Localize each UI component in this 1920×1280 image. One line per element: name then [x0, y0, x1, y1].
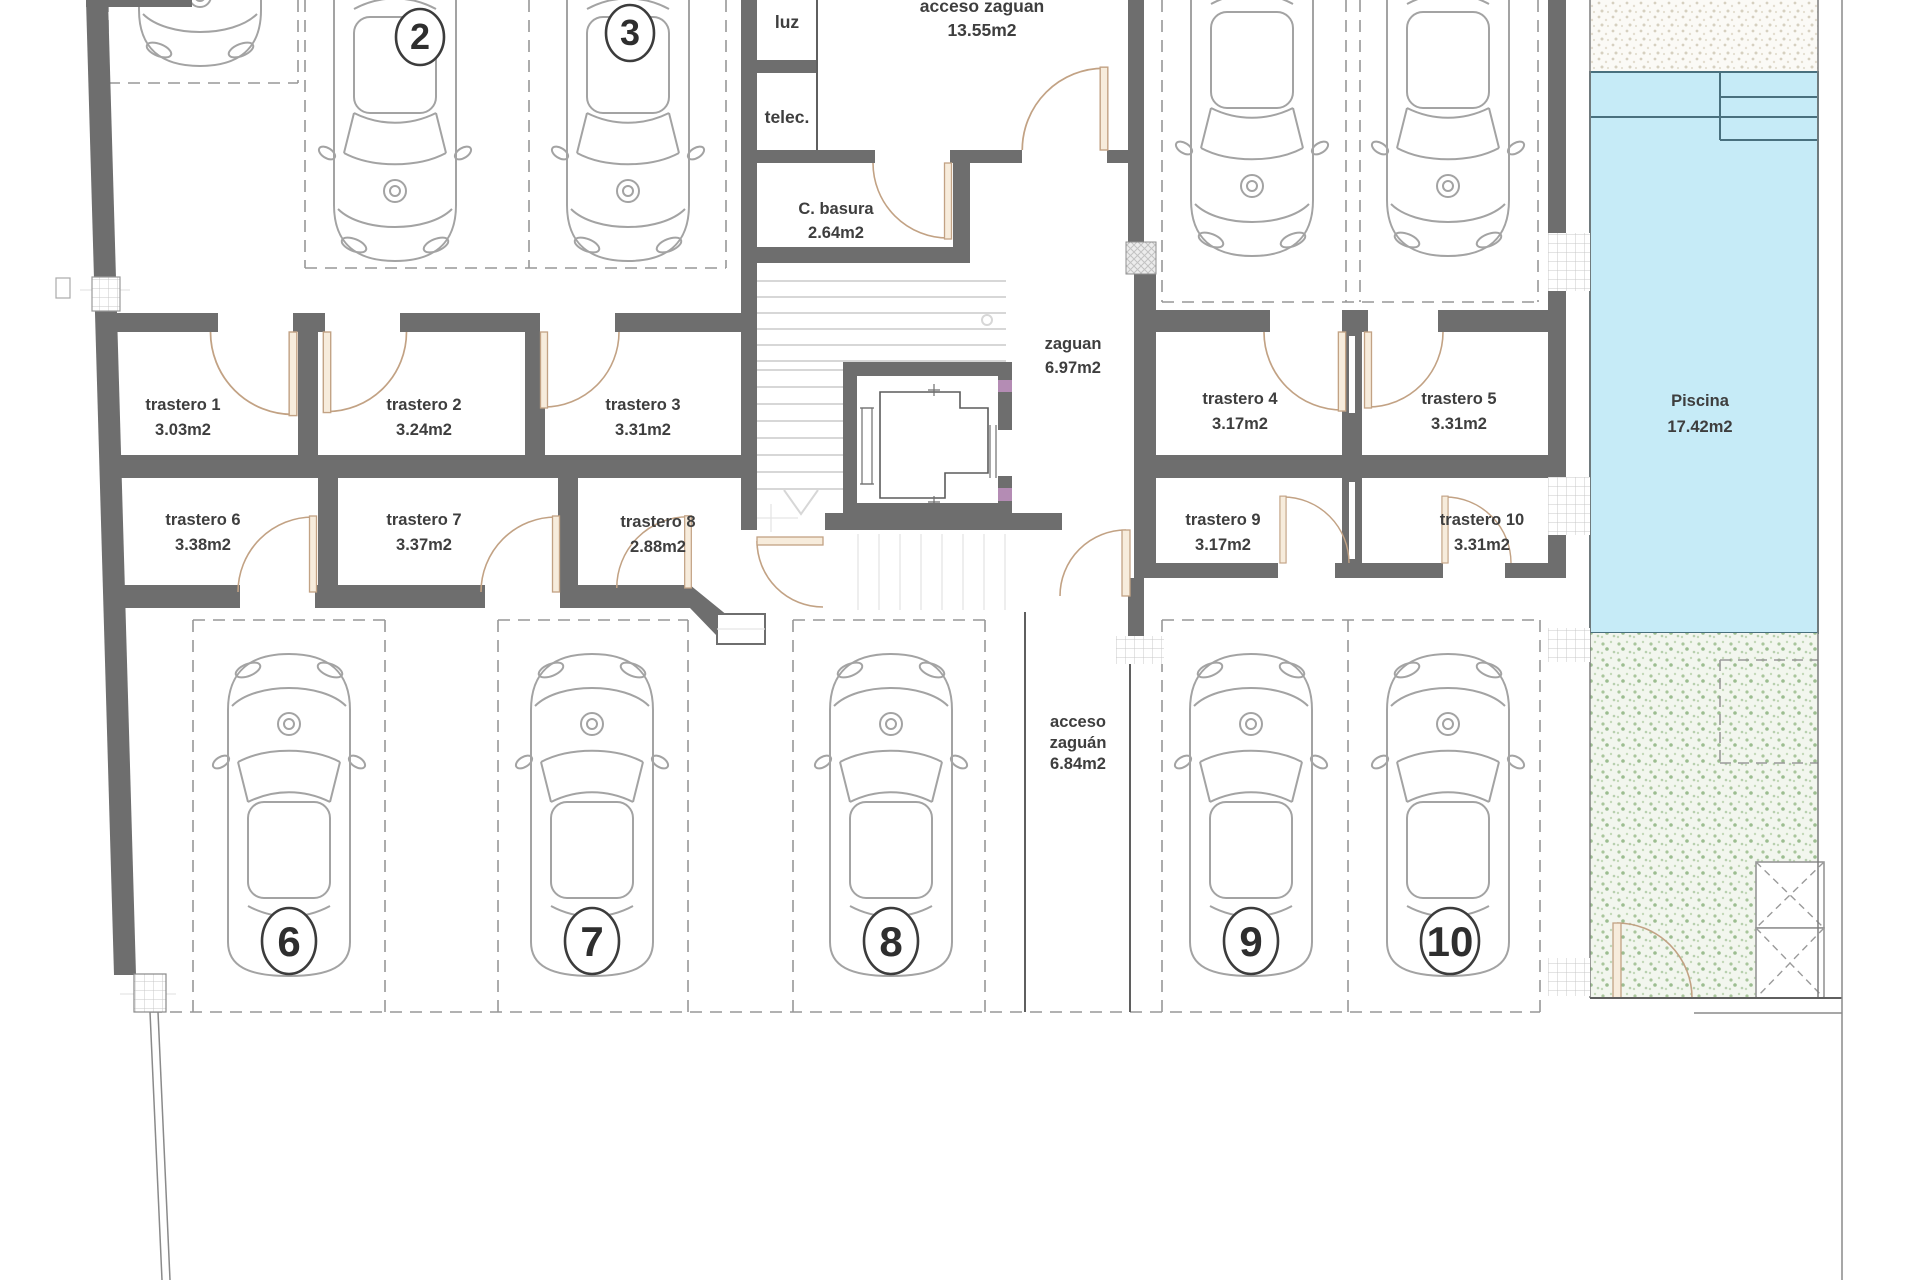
door-jamb-slot: [1349, 336, 1355, 413]
stair-direction-arrow: [784, 490, 818, 514]
storage-label-4: trastero 4: [1202, 390, 1278, 408]
room-label-zaguan: zaguan: [1045, 335, 1102, 353]
access-corridor: [1025, 612, 1130, 1012]
door-zaguan-garage: [1060, 530, 1130, 596]
room-area-basura: 2.64m2: [808, 224, 864, 242]
door-acceso-zaguan: [1022, 67, 1108, 150]
storage-label-3: trastero 3: [605, 396, 680, 414]
pillar: [717, 614, 765, 644]
storage-label-2: trastero 2: [386, 396, 461, 414]
pool-area: 17.42m2: [1667, 418, 1732, 436]
gravel-area: [1590, 0, 1818, 72]
site-boundary-lower: [150, 1012, 170, 1280]
floor-plan-page: 2 3 6 7 8 9 10 luz telec. C. basura 2.64…: [0, 0, 1920, 1280]
room-area-acceso-top: 13.55m2: [947, 20, 1016, 40]
parking-number: 3: [620, 12, 640, 53]
corridor-label-1: acceso: [1050, 713, 1106, 731]
parking-number: 10: [1427, 918, 1474, 965]
storage-label-5: trastero 5: [1421, 390, 1496, 408]
room-label-luz: luz: [775, 12, 800, 32]
pool: [1590, 72, 1818, 633]
storage-area-3: 3.31m2: [615, 421, 671, 439]
storage-area-7: 3.37m2: [396, 536, 452, 554]
storage-label-8: trastero 8: [620, 513, 695, 531]
parking-number: 6: [277, 918, 300, 965]
outdoor-area: [1590, 0, 1842, 1280]
door-stair-hall: [757, 537, 823, 607]
car-4: [1174, 0, 1331, 256]
storage-area-9: 3.17m2: [1195, 536, 1251, 554]
garden-tile-squares: [1756, 862, 1824, 998]
room-area-zaguan: 6.97m2: [1045, 359, 1101, 377]
door-trastero-1: [211, 332, 297, 416]
door-trastero-7: [481, 516, 560, 592]
site-boundary-left-wall: [86, 0, 136, 975]
door-trastero-9: [1280, 496, 1349, 563]
room-label-telec: telec.: [765, 107, 810, 127]
door-jamb-slot: [1349, 482, 1355, 559]
storage-label-10: trastero 10: [1440, 511, 1524, 529]
storage-label-1: trastero 1: [145, 396, 220, 414]
car-5: [1370, 0, 1527, 256]
corridor-area: 6.84m2: [1050, 755, 1106, 773]
storage-area-2: 3.24m2: [396, 421, 452, 439]
elevator: [843, 362, 1012, 517]
storage-area-1: 3.03m2: [155, 421, 211, 439]
storage-label-7: trastero 7: [386, 511, 461, 529]
floor-plan: 2 3 6 7 8 9 10 luz telec. C. basura 2.64…: [0, 0, 1920, 1280]
storage-area-10: 3.31m2: [1454, 536, 1510, 554]
parking-number: 9: [1239, 918, 1262, 965]
car-top-left: [122, 0, 279, 66]
storage-area-6: 3.38m2: [175, 536, 231, 554]
door-basura: [873, 163, 952, 239]
storage-area-5: 3.31m2: [1431, 415, 1487, 433]
storage-area-8: 2.88m2: [630, 538, 686, 556]
pool-label: Piscina: [1671, 392, 1730, 410]
storage-area-4: 3.17m2: [1212, 415, 1268, 433]
storage-label-9: trastero 9: [1185, 511, 1260, 529]
parking-number: 2: [410, 16, 430, 57]
room-label-basura: C. basura: [798, 200, 874, 218]
room-label-acceso-top: acceso zaguan: [920, 0, 1045, 16]
storage-label-6: trastero 6: [165, 511, 240, 529]
corridor-label-2: zaguán: [1050, 734, 1107, 752]
parking-number: 7: [580, 918, 603, 965]
door-trastero-6: [238, 516, 317, 592]
parking-number: 8: [879, 918, 902, 965]
